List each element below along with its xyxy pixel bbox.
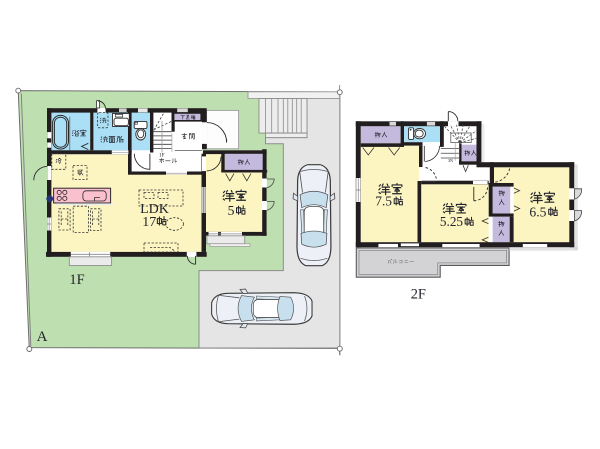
svg-text:2F: 2F <box>411 287 426 303</box>
svg-text:1F: 1F <box>69 272 84 288</box>
svg-text:6.5: 6.5 <box>529 205 546 220</box>
svg-text:5: 5 <box>228 203 235 218</box>
svg-text:7.5: 7.5 <box>375 194 392 209</box>
svg-text:1F: 1F <box>159 153 165 159</box>
svg-text:A: A <box>37 329 48 345</box>
svg-text:3N: 3N <box>448 158 453 163</box>
svg-text:5.25: 5.25 <box>440 214 463 229</box>
svg-text:17: 17 <box>142 215 156 230</box>
